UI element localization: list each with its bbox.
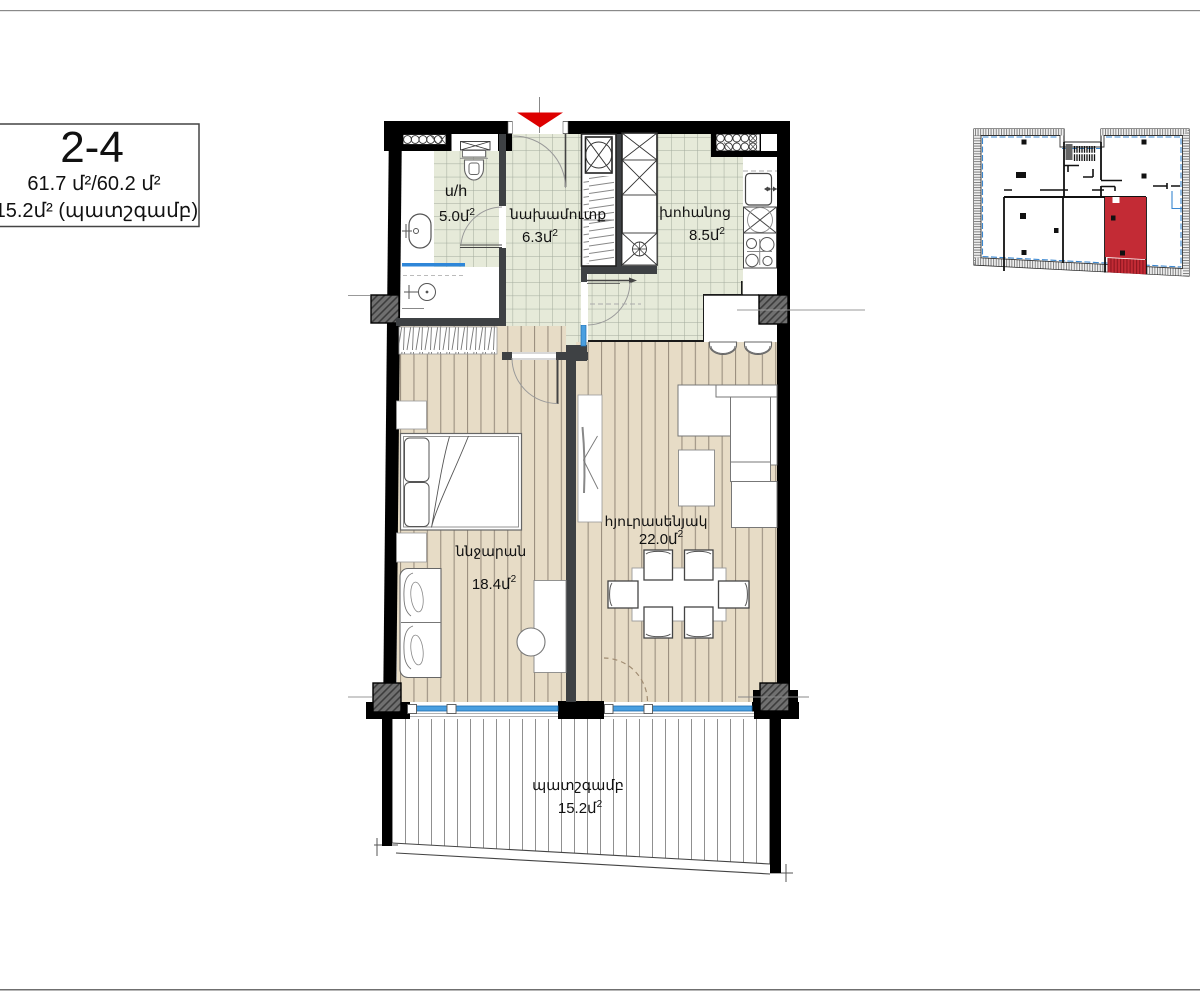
svg-text:ննջարան: ննջարան xyxy=(455,543,527,559)
svg-text:22.0մ2: 22.0մ2 xyxy=(639,529,684,548)
svg-text:15.2մ2: 15.2մ2 xyxy=(558,799,603,817)
svg-text:պատշգամբ: պատշգամբ xyxy=(532,778,624,794)
svg-text:u/h: u/h xyxy=(445,183,467,200)
svg-text:նախամուտք: նախամուտք xyxy=(509,206,606,222)
svg-text:18.4մ2: 18.4մ2 xyxy=(472,574,517,593)
svg-text:հյուրասենյակ: հյուրասենյակ xyxy=(604,513,707,529)
svg-text:խոհանոց: խոհանոց xyxy=(659,204,731,220)
svg-text:61.7 մ²/60.2 մ²: 61.7 մ²/60.2 մ² xyxy=(27,173,161,195)
svg-text:2-4: 2-4 xyxy=(60,123,124,172)
svg-text:-15.2մ² (պատշգամբ): -15.2մ² (պատշգամբ) xyxy=(0,200,198,222)
